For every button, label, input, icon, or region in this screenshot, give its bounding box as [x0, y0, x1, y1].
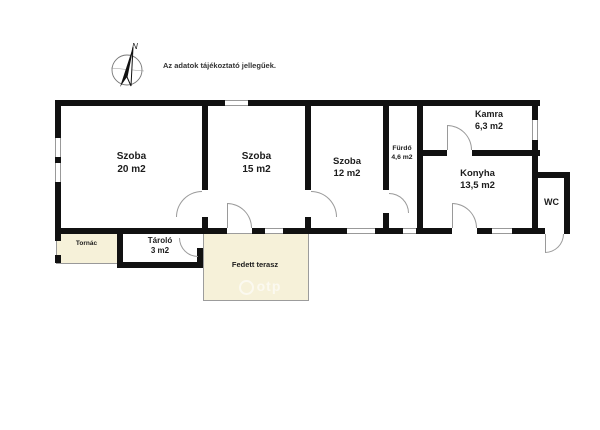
- wall-bottom-6: [477, 228, 492, 234]
- room-name: Fürdő: [386, 145, 418, 154]
- room-area: 12 m2: [311, 168, 383, 180]
- room-name: Kamra: [448, 109, 530, 121]
- room-name: Fedett terasz: [203, 260, 307, 270]
- wall-right-upper: [532, 100, 538, 120]
- room-area: 13,5 m2: [423, 180, 532, 192]
- wall-szoba12-furdo-stub: [383, 213, 389, 234]
- wall-bottom-4: [375, 228, 403, 234]
- room-area: 20 m2: [61, 163, 202, 176]
- wall-kamra-konyha-right: [472, 150, 540, 156]
- room-label-wc: WC: [538, 197, 565, 209]
- room-name: Tornác: [56, 240, 117, 248]
- room-label-tarolo: Tároló 3 m2: [123, 236, 197, 257]
- wall-top-right: [248, 100, 540, 106]
- wall-tarolo-bottom: [117, 262, 203, 268]
- wall-left-upper: [55, 100, 61, 138]
- room-label-szoba12: Szoba 12 m2: [311, 156, 383, 181]
- wall-szoba20-szoba15: [202, 100, 208, 190]
- wall-top-left: [55, 100, 225, 106]
- door-arc-szoba20: [176, 191, 202, 217]
- window-bottom-furdo: [403, 228, 416, 234]
- north-compass-icon: N: [103, 40, 155, 94]
- porch-area-tornac: [56, 233, 118, 264]
- room-label-szoba15: Szoba 15 m2: [208, 150, 305, 176]
- wall-bottom-7: [512, 228, 545, 234]
- wall-left-lower: [55, 182, 61, 233]
- room-area: 4,6 m2: [386, 154, 418, 163]
- room-name: Szoba: [61, 150, 202, 163]
- room-name: Tároló: [123, 236, 197, 246]
- room-name: Konyha: [423, 168, 532, 180]
- door-arc-wc: [545, 234, 564, 253]
- window-bottom-konyha: [492, 228, 512, 234]
- floor-plan: N Az adatok tájékoztató jellegűek. otp: [0, 0, 600, 430]
- room-label-terasz: Fedett terasz: [203, 260, 307, 270]
- door-arc-konyha: [452, 203, 477, 228]
- room-label-kamra: Kamra 6,3 m2: [448, 109, 530, 132]
- door-arc-entry-szoba15: [227, 203, 252, 228]
- room-label-konyha: Konyha 13,5 m2: [423, 168, 532, 193]
- room-area: 6,3 m2: [448, 121, 530, 133]
- door-arc-furdo: [389, 193, 409, 213]
- disclaimer-text: Az adatok tájékoztató jellegűek.: [163, 61, 276, 70]
- room-label-furdo: Fürdő 4,6 m2: [386, 145, 418, 163]
- watermark-text: otp: [257, 278, 282, 294]
- watermark-logo-icon: [239, 280, 254, 295]
- svg-text:N: N: [132, 42, 138, 51]
- window-right-kamra: [532, 120, 538, 140]
- door-arc-szoba12: [311, 191, 337, 217]
- wall-bottom-3: [283, 228, 347, 234]
- wall-tornac-tick-bottom: [55, 255, 61, 263]
- watermark: otp: [212, 278, 308, 295]
- room-label-tornac: Tornác: [56, 240, 117, 248]
- wall-bottom-2: [252, 228, 265, 234]
- room-area: 3 m2: [123, 246, 197, 256]
- window-bottom-szoba12: [347, 228, 375, 234]
- wall-szoba15-szoba12-stub: [305, 217, 311, 234]
- room-name: WC: [538, 197, 565, 209]
- wall-kamra-konyha-left: [417, 150, 447, 156]
- room-name: Szoba: [311, 156, 383, 168]
- room-label-szoba20: Szoba 20 m2: [61, 150, 202, 176]
- wall-furdo-konyha: [417, 100, 423, 234]
- window-top: [225, 100, 248, 106]
- wall-szoba20-szoba15-stub: [202, 217, 208, 234]
- room-name: Szoba: [208, 150, 305, 163]
- room-area: 15 m2: [208, 163, 305, 176]
- window-bottom-szoba15: [265, 228, 283, 234]
